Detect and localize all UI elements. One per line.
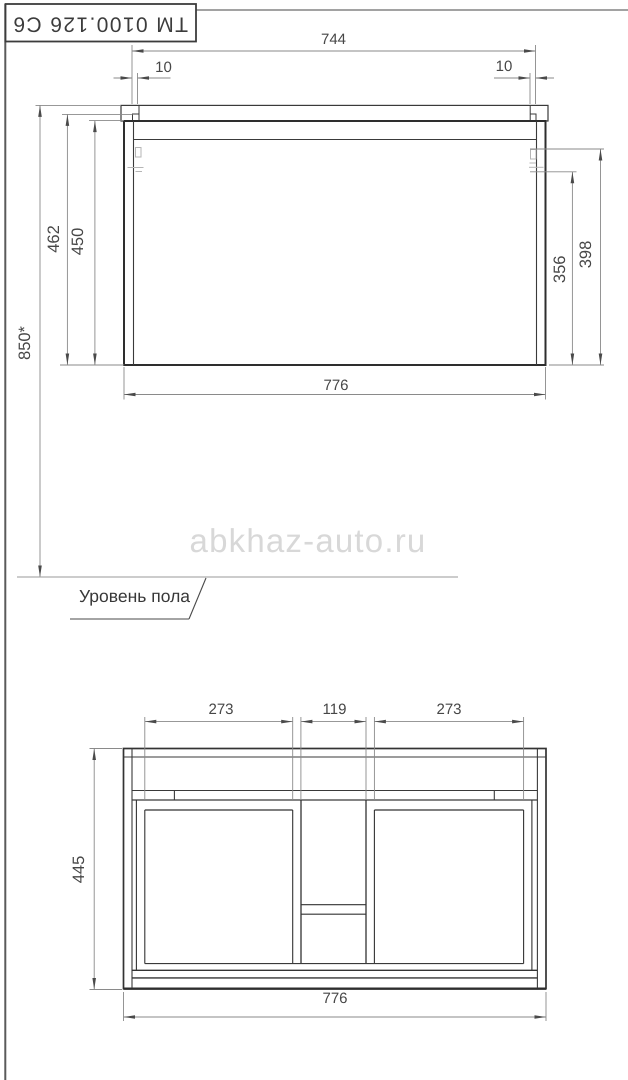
svg-text:abkhaz-auto.ru: abkhaz-auto.ru bbox=[190, 522, 427, 559]
svg-text:445: 445 bbox=[70, 856, 88, 884]
svg-text:850*: 850* bbox=[16, 325, 34, 360]
svg-text:450: 450 bbox=[69, 228, 87, 256]
svg-text:356: 356 bbox=[551, 256, 569, 284]
svg-text:398: 398 bbox=[577, 241, 595, 269]
svg-text:119: 119 bbox=[323, 701, 347, 718]
svg-text:776: 776 bbox=[322, 990, 347, 1007]
svg-text:462: 462 bbox=[45, 225, 63, 253]
svg-text:10: 10 bbox=[155, 59, 172, 76]
svg-text:273: 273 bbox=[436, 701, 461, 718]
svg-text:ТМ 0100.126 С6: ТМ 0100.126 С6 bbox=[12, 12, 188, 35]
svg-text:273: 273 bbox=[208, 701, 233, 718]
svg-text:744: 744 bbox=[321, 31, 346, 48]
svg-text:Уровень пола: Уровень пола bbox=[79, 586, 190, 606]
svg-text:10: 10 bbox=[496, 58, 513, 75]
svg-text:776: 776 bbox=[323, 377, 348, 394]
